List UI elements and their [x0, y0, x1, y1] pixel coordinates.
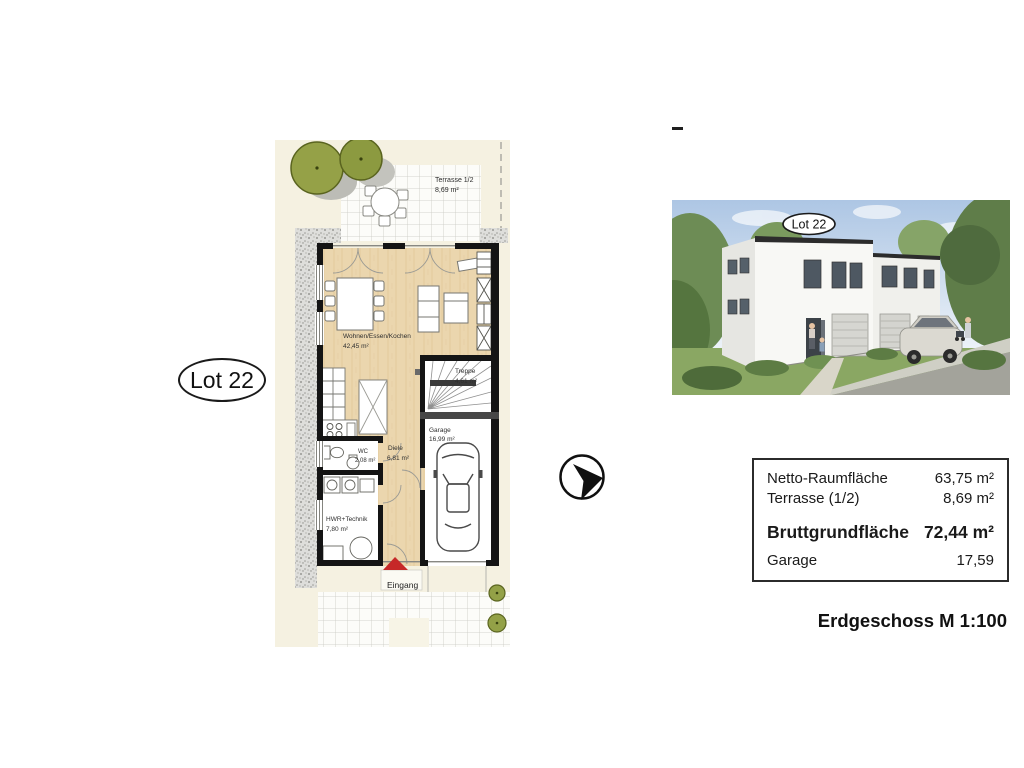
- wall-units: [477, 252, 491, 350]
- shelf-unit: [477, 252, 491, 274]
- dining-chair: [325, 311, 335, 321]
- wall: [420, 490, 425, 560]
- toilet-tank: [323, 446, 330, 459]
- garage-wall: [420, 412, 499, 419]
- sink-unit: [347, 423, 355, 437]
- car-body: [437, 443, 479, 551]
- window: [315, 441, 324, 467]
- room-area-diele: 6,81 m²: [387, 455, 410, 462]
- room-area-wc: 2,08 m²: [355, 458, 375, 464]
- lot-badge-render-text: Lot 22: [792, 218, 827, 232]
- wall: [317, 300, 323, 312]
- room-label-wc: WC: [358, 449, 369, 455]
- car-mirror: [434, 470, 438, 478]
- dining-chair: [325, 281, 335, 291]
- room-label-garage: Garage: [429, 427, 451, 434]
- sofa: [418, 286, 439, 332]
- page: Lot 22: [0, 0, 1024, 768]
- garage-door-line: [428, 561, 486, 562]
- row-label: Garage: [767, 551, 817, 571]
- wall: [420, 355, 425, 412]
- row-value: 63,75 m²: [935, 469, 994, 489]
- dryer-door: [345, 480, 355, 490]
- wall: [317, 436, 383, 441]
- house-render-image: Lot 22: [672, 200, 1010, 395]
- driveway-notch: [389, 618, 429, 647]
- dining-chair: [325, 296, 335, 306]
- row-label: Bruttgrundfläche: [767, 520, 909, 544]
- door-threshold: [333, 245, 383, 246]
- lot-badge-plan: Lot 22: [178, 358, 266, 402]
- row-value: 17,59: [956, 551, 994, 571]
- terrace-table: [371, 188, 399, 216]
- window: [315, 265, 324, 300]
- room-area-hwr: 7,80 m²: [326, 526, 349, 533]
- lot-badge-plan-text: Lot 22: [190, 367, 254, 394]
- door-threshold: [420, 468, 421, 490]
- wall: [420, 419, 425, 468]
- row-value: 72,44 m²: [924, 520, 994, 544]
- row-label: Terrasse (1/2): [767, 489, 860, 509]
- dining-chair: [374, 311, 384, 321]
- row-label: Netto-Raumfläche: [767, 469, 888, 489]
- room-area-treppe: 4,61 m²: [455, 378, 478, 385]
- wall: [317, 345, 323, 441]
- dash-mark: [672, 127, 683, 130]
- wall: [486, 560, 499, 566]
- entrance-label: Eingang: [387, 580, 418, 590]
- room-area-garage: 16,99 m²: [429, 436, 455, 443]
- dining-table: [337, 278, 373, 330]
- wall: [378, 505, 383, 560]
- row-value: 8,69 m²: [943, 489, 994, 509]
- washer-door: [327, 480, 337, 490]
- room-label-diele: Diele: [388, 445, 403, 452]
- scale-caption: Erdgeschoss M 1:100: [818, 610, 1007, 632]
- room-area-terrasse: 8,69 m²: [435, 187, 459, 194]
- gravel-band-left: [295, 228, 341, 243]
- wall: [317, 470, 383, 475]
- dining-chair: [374, 281, 384, 291]
- table-row: Garage 17,59: [767, 551, 994, 571]
- bush-dot: [496, 622, 499, 625]
- wall: [383, 243, 405, 249]
- room-label-hwr: HWR+Technik: [326, 516, 368, 523]
- table-row: Netto-Raumfläche 63,75 m²: [767, 469, 994, 489]
- bush-dot: [496, 592, 499, 595]
- boiler: [350, 537, 372, 559]
- lot-badge-render: Lot 22: [783, 214, 835, 235]
- wall: [378, 463, 383, 485]
- wall: [491, 243, 499, 566]
- wall: [420, 560, 428, 566]
- room-label-wohnen: Wohnen/Essen/Kochen: [343, 333, 411, 340]
- room-label-terrasse: Terrasse 1/2: [435, 177, 474, 184]
- tree-dot: [359, 157, 362, 160]
- wall: [420, 355, 499, 361]
- window: [315, 500, 324, 530]
- car-mirror: [479, 470, 483, 478]
- floor-plan: Terrasse 1/2 8,69 m²: [275, 140, 510, 647]
- technik-box: [360, 479, 374, 492]
- window: [315, 312, 324, 345]
- room-area-wohnen: 42,45 m²: [343, 343, 369, 350]
- technik-unit: [323, 546, 343, 561]
- terrace-chair: [379, 216, 390, 226]
- room-label-treppe: Treppe: [455, 368, 476, 375]
- gravel-band-right: [480, 228, 508, 243]
- tree-dot: [315, 166, 318, 169]
- door-threshold: [405, 245, 455, 246]
- table-row: Terrasse (1/2) 8,69 m²: [767, 489, 994, 509]
- armchair: [444, 293, 468, 323]
- table-row-total: Bruttgrundfläche 72,44 m²: [767, 520, 994, 544]
- area-table: Netto-Raumfläche 63,75 m² Terrasse (1/2)…: [752, 458, 1009, 582]
- wall: [317, 243, 323, 265]
- garage-door-left: [832, 314, 868, 356]
- left-facade: [722, 238, 755, 370]
- toilet-bowl: [331, 447, 344, 457]
- wall: [455, 243, 497, 249]
- entrance-threshold: [383, 561, 420, 562]
- wall: [317, 560, 383, 566]
- gravel-strip-west: [295, 243, 317, 588]
- garage-car: [434, 443, 483, 551]
- dining-chair: [374, 296, 384, 306]
- wall: [378, 436, 383, 443]
- north-arrow-icon: [557, 452, 607, 502]
